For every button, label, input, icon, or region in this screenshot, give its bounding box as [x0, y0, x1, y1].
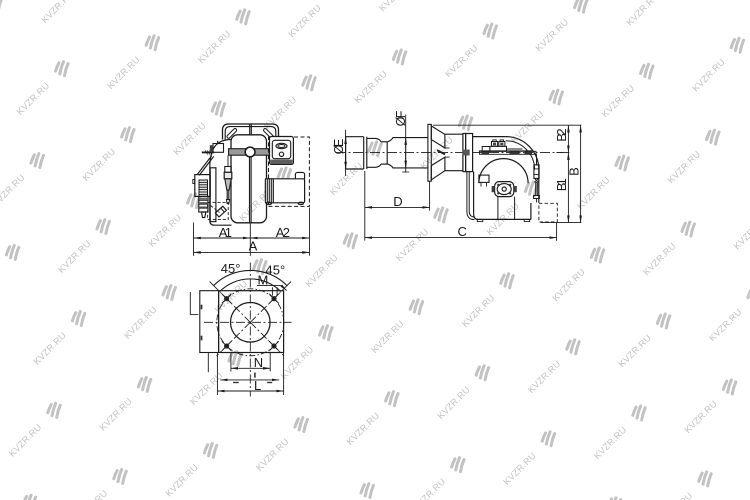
svg-text:A2: A2: [276, 225, 290, 240]
svg-text:M: M: [257, 272, 268, 287]
svg-text:L: L: [254, 378, 261, 393]
svg-text:A: A: [249, 239, 258, 254]
svg-text:C: C: [458, 224, 467, 239]
svg-text:45°: 45°: [265, 262, 285, 277]
svg-text:45°: 45°: [221, 261, 241, 276]
svg-text:D: D: [393, 194, 402, 209]
svg-text:B: B: [567, 167, 582, 176]
svg-text:N: N: [254, 355, 263, 370]
svg-text:ØE: ØE: [332, 139, 346, 155]
svg-text:A1: A1: [219, 225, 232, 240]
svg-text:B1: B1: [554, 178, 569, 191]
svg-text:B2: B2: [554, 128, 569, 141]
svg-text:ØF: ØF: [394, 110, 408, 126]
